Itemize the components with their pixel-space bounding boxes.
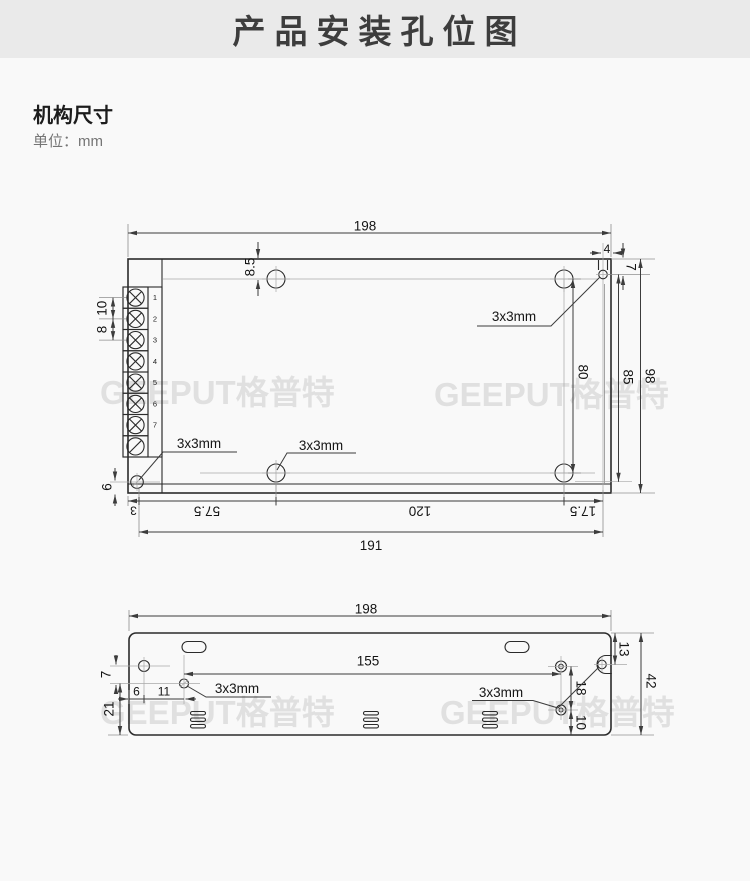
terminal-number: 2 <box>153 314 157 323</box>
terminal-number: 4 <box>153 357 157 366</box>
hole-size-label: 3x3mm <box>299 438 343 453</box>
dim-seg1: 57.5 <box>194 504 220 519</box>
dim-top-width: 198 <box>354 219 377 234</box>
hole-size-label: 3x3mm <box>492 309 536 324</box>
base-outline <box>129 633 611 735</box>
dim-base-height: 42 <box>644 673 659 688</box>
dim-hole-to-base: 10 <box>574 715 589 730</box>
dim-edge-seg: 3 <box>130 504 137 518</box>
dim-corner-hole: 6 <box>100 483 115 491</box>
dim-hole-gap: 11 <box>158 685 171 699</box>
dim-seg2: 120 <box>409 504 432 519</box>
chassis-outline <box>128 259 611 493</box>
terminal-number: 1 <box>153 293 157 302</box>
hole-size-leaders-bottom-view: 3x3mm 3x3mm <box>188 667 599 708</box>
dim-hole-top-offset: 8.5 <box>243 258 258 277</box>
hole-size-label: 3x3mm <box>215 681 259 696</box>
dim-height: 98 <box>643 368 658 383</box>
dim-holes-vertical: 80 <box>576 364 591 379</box>
mounting-holes-top-view <box>131 266 610 491</box>
unit-label: 单位：mm <box>33 130 103 151</box>
terminal-block: 1 2 3 4 5 6 7 <box>123 287 162 457</box>
hole-size-leaders-top-view: 3x3mm 3x3mm 3x3mm <box>139 277 600 480</box>
potentiometer-slash <box>130 441 141 452</box>
dim-edge-to-hole: 6 <box>133 685 140 699</box>
dim-top-to-hole: 13 <box>617 641 632 656</box>
dim-hole-row-gap: 7 <box>99 671 114 679</box>
top-view: 1 2 3 4 5 6 7 <box>95 219 658 554</box>
dim-seg3: 17.5 <box>570 504 596 519</box>
bottom-view: 198 155 13 42 7 21 6 11 <box>99 602 659 736</box>
dim-flange-vertical: 85 <box>621 369 636 384</box>
dim-flange-hole-top: 7 <box>624 263 639 271</box>
dim-hole-span: 191 <box>360 538 383 553</box>
hole-size-label: 3x3mm <box>479 685 523 700</box>
dim-terminal-pitch-b: 8 <box>95 326 110 334</box>
dim-terminal-pitch-a: 10 <box>95 301 110 316</box>
vent-slots <box>191 712 498 728</box>
terminal-number: 5 <box>153 378 157 387</box>
dim-bottom-span: 155 <box>357 654 380 669</box>
hole-size-label: 3x3mm <box>177 436 221 451</box>
section-title: 机构尺寸 <box>33 99 113 128</box>
page: 产品安装孔位图 机构尺寸 单位：mm GEEPUT格普特 GEEPUT格普特 G… <box>0 0 750 881</box>
terminal-number: 7 <box>153 421 157 430</box>
terminal-number: 3 <box>153 336 157 345</box>
dim-flange-width: 4 <box>604 242 611 256</box>
dim-holes-gap-v: 18 <box>574 680 589 695</box>
terminal-number: 6 <box>153 399 157 408</box>
dim-hole-to-bottom: 21 <box>102 701 117 716</box>
dim-bottom-width: 198 <box>355 602 378 617</box>
